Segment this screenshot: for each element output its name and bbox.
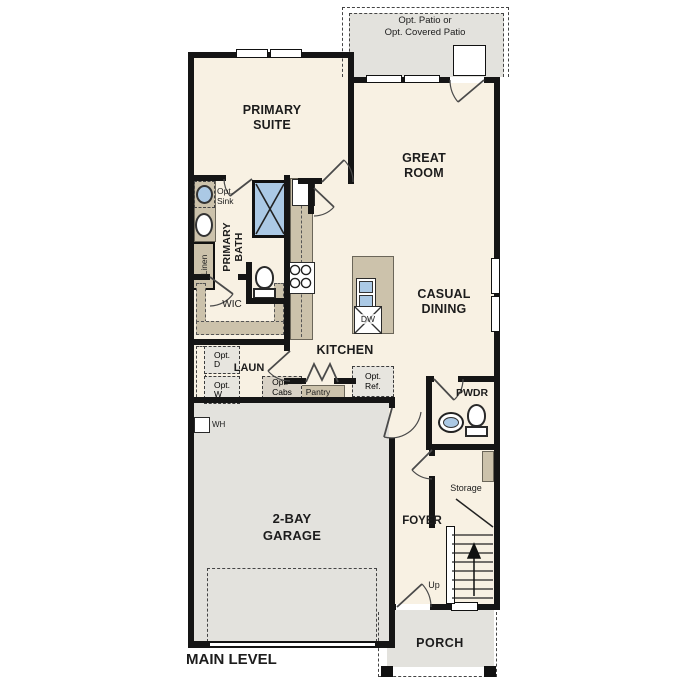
window <box>270 49 302 58</box>
linen-label: Linen <box>199 255 209 276</box>
garage-door-dashed-outline <box>207 568 377 642</box>
powder-toilet-bowl <box>467 404 486 427</box>
opt-ref-label-2: Ref. <box>365 382 381 392</box>
porch-post-right <box>484 666 496 677</box>
porch-post-left <box>381 666 393 677</box>
garage-entry-opening <box>389 408 395 438</box>
wall <box>188 397 395 403</box>
primary-toilet-bowl <box>255 266 274 289</box>
opt-sink-label: Opt.Sink <box>217 187 243 206</box>
window <box>491 296 500 332</box>
cooktop-fixture <box>287 262 315 294</box>
wall <box>308 184 314 214</box>
shower-fixture <box>252 180 288 238</box>
water-heater-label: WH <box>212 420 234 429</box>
patio-door-landing <box>453 45 486 76</box>
window <box>236 49 268 58</box>
opt-ref-box: Opt.Ref. <box>352 366 394 397</box>
primary-bath-label: PRIMARYBATH <box>221 210 245 284</box>
porch-label: PORCH <box>400 636 480 650</box>
window <box>404 75 440 83</box>
wall <box>494 77 500 610</box>
window <box>366 75 402 83</box>
wic-label: WIC <box>216 299 248 310</box>
floor-plan-canvas: Opt.Cabs Opt.Ref. Opt.D Opt.W <box>0 0 687 687</box>
pantry-label: Pantry <box>292 387 344 397</box>
wall <box>334 378 356 384</box>
plan-title: MAIN LEVEL <box>186 651 326 668</box>
wall <box>348 52 354 184</box>
wall <box>429 450 435 456</box>
water-heater-fixture <box>194 417 210 433</box>
kitchen-label: KITCHEN <box>300 343 390 358</box>
window <box>491 258 500 294</box>
wall <box>389 438 395 648</box>
up-label: Up <box>423 580 445 590</box>
wall <box>458 376 500 382</box>
great-room-label: GREATROOM <box>364 151 484 181</box>
storage-label: Storage <box>438 483 494 493</box>
wall <box>426 444 500 450</box>
patio-label: Opt. Patio orOpt. Covered Patio <box>345 15 505 39</box>
patio-door-opening <box>450 77 484 83</box>
wic-shelf-bottom <box>196 321 284 335</box>
laundry-label: LAUN <box>228 362 270 374</box>
opt-cabs-label-2: Cabs <box>272 388 292 398</box>
storage-shelf <box>482 451 494 482</box>
dishwasher-label: DW <box>355 314 381 324</box>
stair-railing <box>446 526 455 604</box>
garage-door-panel <box>210 642 375 647</box>
wall <box>246 298 288 304</box>
wall <box>188 339 290 345</box>
front-door-opening <box>396 604 430 610</box>
casual-dining-label: CASUALDINING <box>398 287 490 317</box>
island-sink-basin-top <box>359 281 373 293</box>
opt-sink-fixture <box>196 185 213 204</box>
powder-label: PWDR <box>448 387 496 399</box>
primary-suite-label: PRIMARYSUITE <box>202 103 342 133</box>
powder-toilet-tank <box>465 426 488 437</box>
foyer-label: FOYER <box>392 515 452 527</box>
wall <box>284 378 306 384</box>
window <box>451 602 478 611</box>
wall <box>188 52 194 648</box>
vanity-sink-fixture <box>195 213 213 237</box>
garage-label: 2-BAYGARAGE <box>232 510 352 544</box>
wall <box>284 175 290 351</box>
wall <box>188 175 226 181</box>
wall <box>426 376 432 450</box>
powder-sink-basin <box>443 417 459 428</box>
